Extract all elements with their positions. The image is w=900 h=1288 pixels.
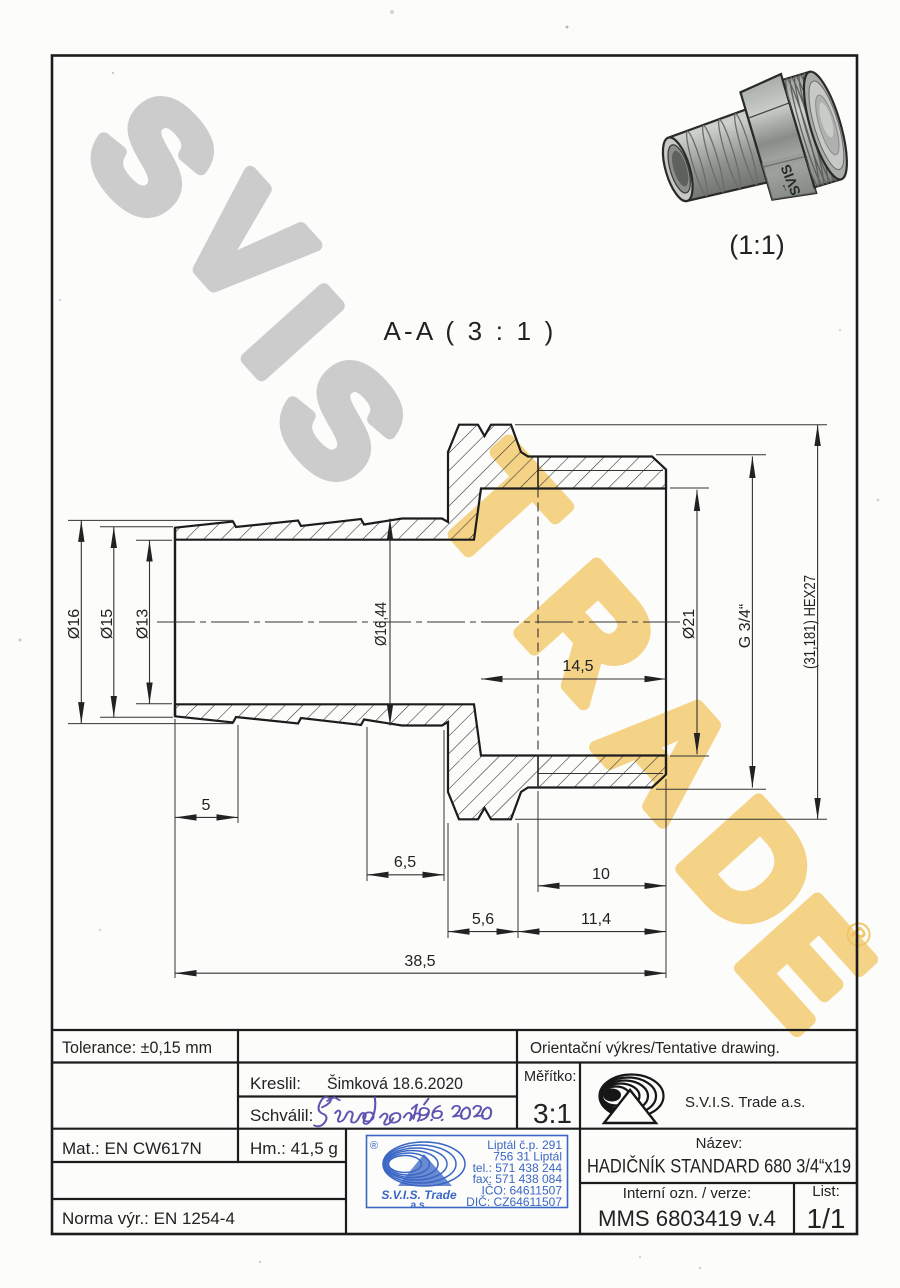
svg-text:Šimková 18.6.2020: Šimková 18.6.2020 [327, 1074, 463, 1093]
svg-text:Kreslil:: Kreslil: [250, 1074, 301, 1093]
svg-text:1/1: 1/1 [807, 1203, 846, 1234]
svg-text:MMS 6803419 v.4: MMS 6803419 v.4 [598, 1206, 776, 1231]
svg-text:10: 10 [592, 866, 610, 883]
svg-text:DIČ: CZ64611507: DIČ: CZ64611507 [466, 1194, 562, 1209]
svg-text:A-A ( 3 : 1 ): A-A ( 3 : 1 ) [383, 316, 556, 346]
svg-text:14,5: 14,5 [562, 658, 593, 675]
svg-text:(31,181) HEX27: (31,181) HEX27 [802, 575, 819, 669]
svg-text:HADIČNÍK STANDARD 680 3/4“x19: HADIČNÍK STANDARD 680 3/4“x19 [587, 1156, 851, 1178]
svg-text:Ø13: Ø13 [135, 609, 152, 639]
svg-text:5,6: 5,6 [472, 911, 494, 928]
svg-text:Ø15: Ø15 [99, 609, 116, 639]
svg-text:Hm.: 41,5 g: Hm.: 41,5 g [250, 1139, 338, 1158]
svg-text:5: 5 [202, 797, 211, 814]
svg-text:Měřítko:: Měřítko: [524, 1069, 576, 1085]
svg-text:Mat.: EN CW617N: Mat.: EN CW617N [62, 1139, 202, 1158]
svg-text:Tolerance: ±0,15 mm: Tolerance: ±0,15 mm [62, 1038, 212, 1057]
svg-text:a.s.: a.s. [411, 1200, 428, 1211]
svg-text:Ø21: Ø21 [681, 609, 698, 639]
svg-text:Interní ozn. / verze:: Interní ozn. / verze: [623, 1185, 751, 1202]
svg-text:11,4: 11,4 [581, 911, 611, 928]
svg-text:Schválil:: Schválil: [250, 1106, 313, 1125]
svg-text:List:: List: [812, 1183, 840, 1200]
svg-text:Ø16,44: Ø16,44 [373, 602, 390, 646]
svg-text:Orientační výkres/Tentative dr: Orientační výkres/Tentative drawing. [530, 1040, 780, 1057]
svg-text:®: ® [370, 1140, 378, 1152]
svg-text:3:1: 3:1 [533, 1098, 572, 1129]
svg-text:G 3/4“: G 3/4“ [737, 604, 754, 648]
svg-text:Ø16: Ø16 [66, 609, 83, 639]
svg-text:6,5: 6,5 [394, 854, 416, 871]
svg-text:(1:1): (1:1) [729, 230, 785, 260]
svg-text:S.V.I.S. Trade a.s.: S.V.I.S. Trade a.s. [685, 1094, 805, 1111]
svg-text:Norma výr.: EN 1254-4: Norma výr.: EN 1254-4 [62, 1209, 235, 1228]
svg-text:38,5: 38,5 [404, 953, 435, 970]
svg-text:Název:: Název: [696, 1135, 743, 1152]
